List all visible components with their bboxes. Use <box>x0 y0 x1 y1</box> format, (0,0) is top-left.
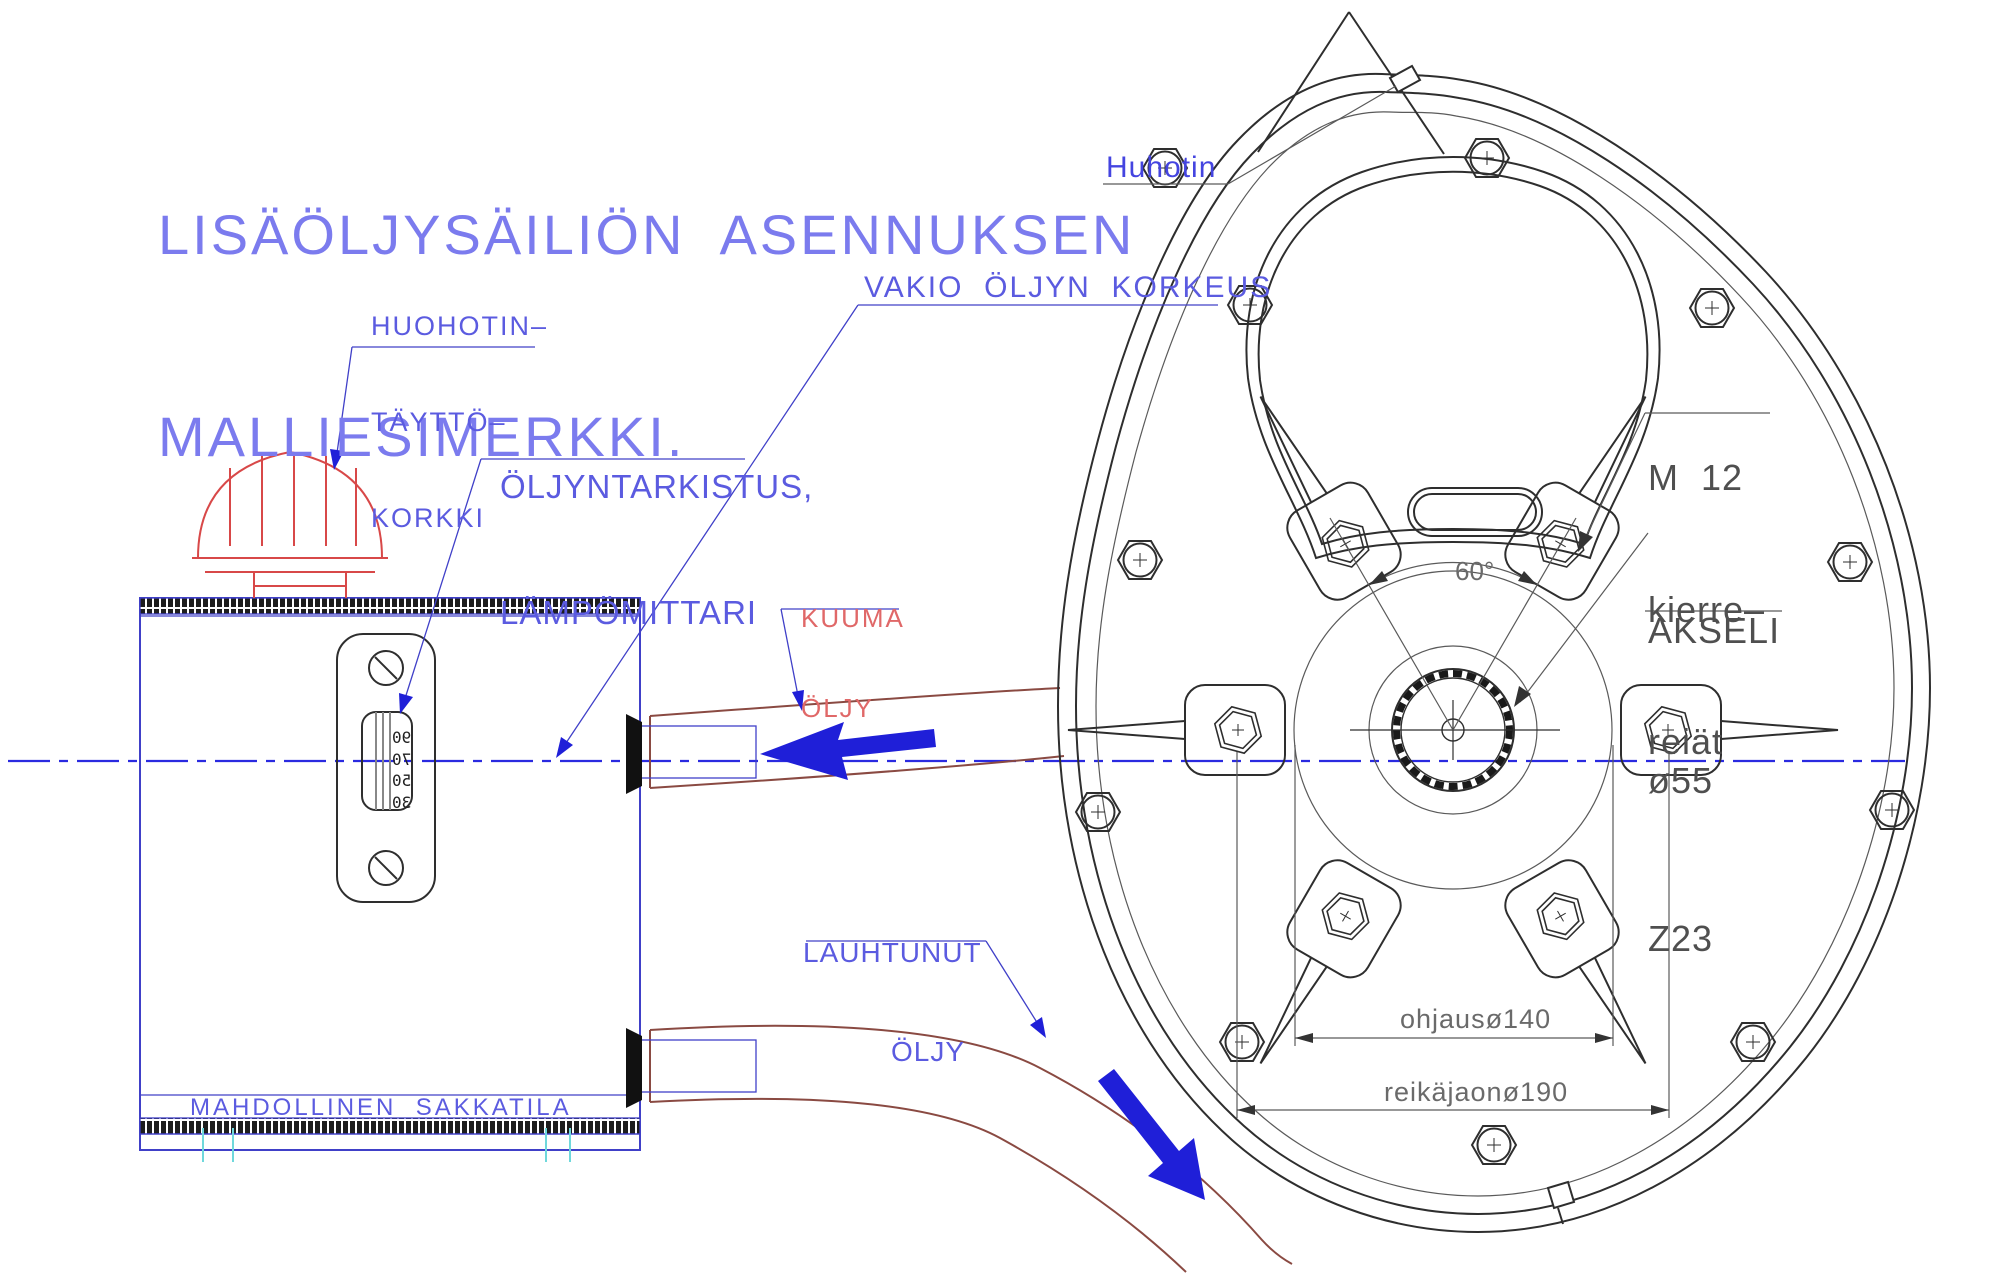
oil-tank <box>140 598 640 1162</box>
scale-90: 90 <box>392 728 411 747</box>
sight-glass <box>337 634 435 902</box>
dim-angle: 60° <box>1455 556 1494 587</box>
label-sludge-space: MAHDOLLINEN SAKKATILA <box>190 1094 572 1122</box>
label-oil-level: VAKIO ÖLJYN KORKEUS <box>864 270 1272 305</box>
scale-30: 30 <box>392 793 411 812</box>
label-hot-oil-line2: ÖLJY <box>801 693 905 723</box>
label-axle-line1: AKSELI <box>1648 606 1780 656</box>
flow-arrow-cooled <box>1098 1069 1205 1200</box>
label-thread-line1: M 12 <box>1648 456 1765 500</box>
scale-50: 50 <box>392 771 411 790</box>
label-breather: Huhotin <box>1106 150 1216 185</box>
label-cooled-oil-line1: LAUHTUNUT <box>803 936 965 969</box>
top-bracket <box>1258 12 1444 154</box>
label-oil-check: ÖLJYNTARKISTUS, LÄMPÖMITTARI <box>500 382 813 676</box>
drain-nipple <box>1548 1182 1574 1224</box>
page-title-line1: LISÄÖLJYSÄILIÖN ASENNUKSEN <box>158 202 1135 268</box>
cooled-pipe-fitting <box>626 1028 642 1108</box>
label-oil-check-line2: LÄMPÖMITTARI <box>500 592 813 634</box>
bolt-circle-dimension <box>1237 752 1669 1118</box>
label-axle-line2: ø55 <box>1648 756 1780 806</box>
hot-pipe-fitting <box>626 714 642 794</box>
breather-nipple <box>1390 66 1420 92</box>
label-axle-line3: Z23 <box>1648 914 1780 964</box>
label-cooled-oil-line2: ÖLJY <box>803 1035 965 1068</box>
dim-guide-diameter: ohjausø140 <box>1400 1004 1551 1036</box>
label-oil-check-line1: ÖLJYNTARKISTUS, <box>500 466 813 508</box>
dim-bolt-circle: reikäjaonø190 <box>1384 1077 1568 1109</box>
label-hot-oil: KUUMA ÖLJY <box>801 543 905 753</box>
scale-70: 70 <box>392 750 411 769</box>
cooled-pipe-connector <box>640 1040 756 1092</box>
technical-drawing-page: LISÄÖLJYSÄILIÖN ASENNUKSEN MALLIESIMERKK… <box>0 0 1993 1274</box>
label-filler-cap-line1: HUOHOTIN– <box>371 310 548 342</box>
label-hot-oil-line1: KUUMA <box>801 603 905 633</box>
angle-dimension <box>1330 518 1576 730</box>
gearbox-housing <box>1058 12 1930 1232</box>
label-cooled-oil: LAUHTUNUT ÖLJY <box>803 870 965 1101</box>
label-axle: AKSELI ø55 Z23 <box>1648 506 1780 1014</box>
hot-pipe-connector <box>640 726 756 778</box>
